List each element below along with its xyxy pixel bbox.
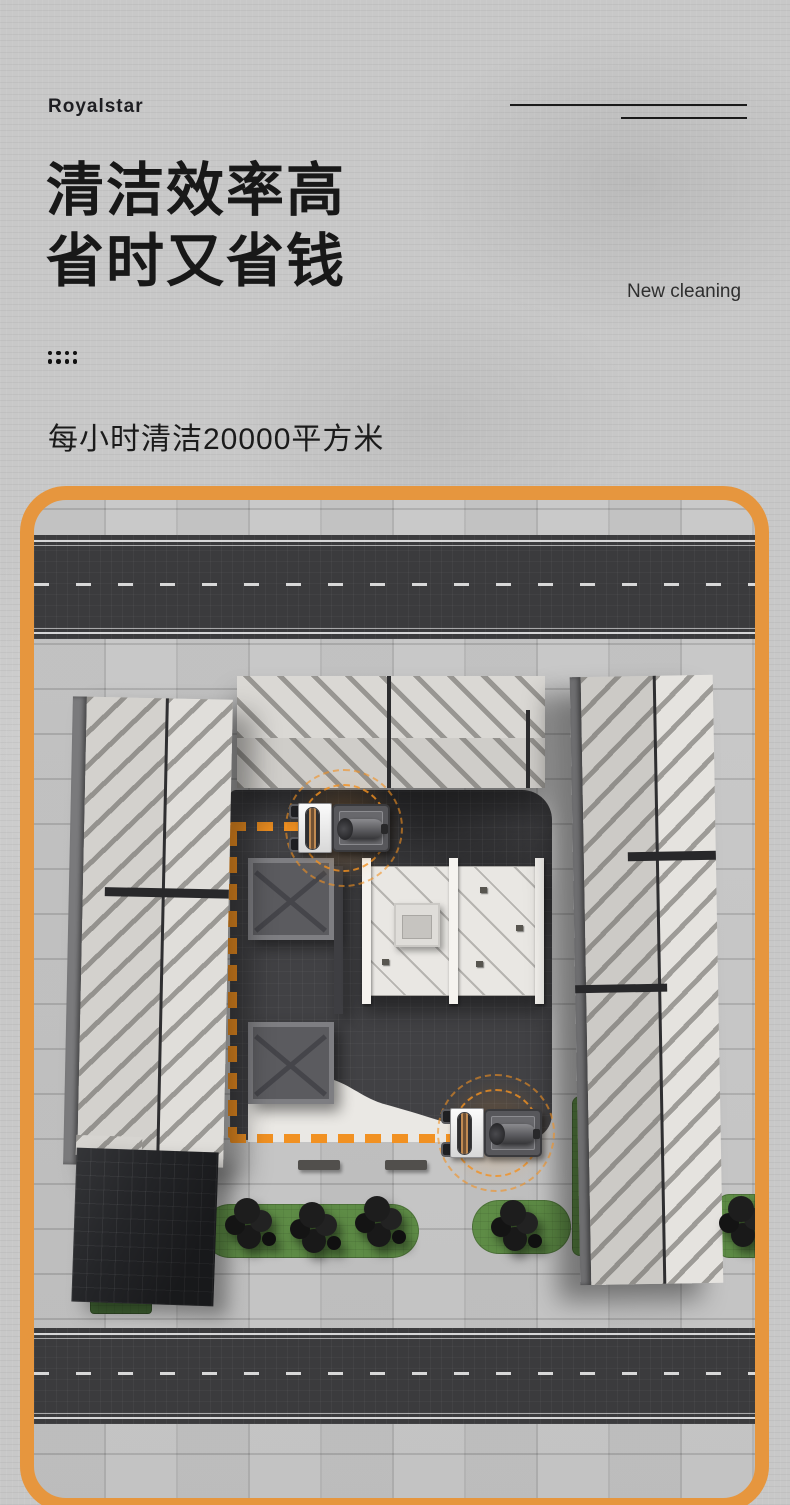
- building-center-white: [363, 866, 543, 996]
- road-edge-line: [34, 540, 755, 542]
- building-slab: [77, 697, 167, 1167]
- container-box: [248, 1022, 334, 1104]
- roof-vent: [476, 961, 483, 967]
- aerial-scene-frame: [20, 486, 769, 1505]
- poster-page: Royalstar 清洁效率高 省时又省钱 New cleaning 每小时清洁…: [0, 0, 790, 1505]
- roof-vent: [382, 959, 389, 965]
- roof-vent: [516, 925, 523, 931]
- tree: [216, 1192, 282, 1256]
- dot-grid-icon: [48, 351, 82, 364]
- cleaning-robot-2: [450, 1108, 542, 1158]
- asphalt-texture: [34, 535, 755, 639]
- aerial-scene: [34, 500, 755, 1498]
- road-center-dashes: [34, 583, 755, 586]
- building-black-glass: [71, 1148, 218, 1307]
- robot-tank: [494, 1124, 536, 1144]
- building-seam: [387, 676, 391, 788]
- building-slab: [237, 676, 545, 738]
- cleaning-robot-1: [298, 803, 390, 853]
- headline-line-1: 清洁效率高: [46, 156, 346, 227]
- asphalt-texture: [34, 1328, 755, 1424]
- road-edge-line: [34, 1338, 755, 1339]
- road-edge-line: [34, 632, 755, 634]
- subtitle-spec: 每小时清洁20000平方米: [48, 414, 384, 458]
- robot-cab: [298, 803, 332, 853]
- road-edge-line: [34, 1417, 755, 1419]
- robot-brush-roller: [458, 1113, 471, 1154]
- road-top: [34, 535, 755, 639]
- building-right: [570, 675, 724, 1285]
- building-seam: [628, 851, 716, 862]
- roof-structure: [394, 903, 440, 947]
- building-left: [63, 696, 233, 1167]
- headline-line-2: 省时又省钱: [46, 227, 346, 298]
- building-seam: [575, 984, 667, 994]
- building-top: [237, 676, 545, 788]
- building-slab: [237, 738, 545, 788]
- tree: [281, 1196, 347, 1260]
- building-slab: [581, 676, 665, 1285]
- robot-brush-roller: [306, 808, 319, 849]
- decor-line-short: [621, 117, 747, 119]
- roof-vent: [480, 887, 487, 893]
- decor-line-long: [510, 104, 747, 106]
- bench: [385, 1160, 427, 1170]
- road-edge-line: [34, 1413, 755, 1414]
- building-seam: [526, 710, 530, 788]
- tagline-en: New cleaning: [627, 281, 741, 303]
- robot-cab: [450, 1108, 484, 1158]
- road-edge-line: [34, 545, 755, 546]
- road-edge-line: [34, 1333, 755, 1335]
- tree: [346, 1190, 412, 1254]
- tree: [710, 1190, 769, 1254]
- roof-beam: [535, 858, 544, 1004]
- robot-tank: [342, 819, 384, 839]
- robot-body: [484, 1109, 542, 1157]
- brand-logo: Royalstar: [48, 96, 144, 118]
- robot-body: [332, 804, 390, 852]
- road-center-dashes: [34, 1372, 755, 1375]
- tree: [482, 1194, 548, 1258]
- road-edge-line: [34, 628, 755, 629]
- bench: [298, 1160, 340, 1170]
- headline: 清洁效率高 省时又省钱: [46, 156, 346, 298]
- route-dash-vertical: [228, 830, 237, 1138]
- building-slab: [157, 698, 233, 1167]
- roof-beam: [449, 858, 458, 1004]
- road-bottom: [34, 1328, 755, 1424]
